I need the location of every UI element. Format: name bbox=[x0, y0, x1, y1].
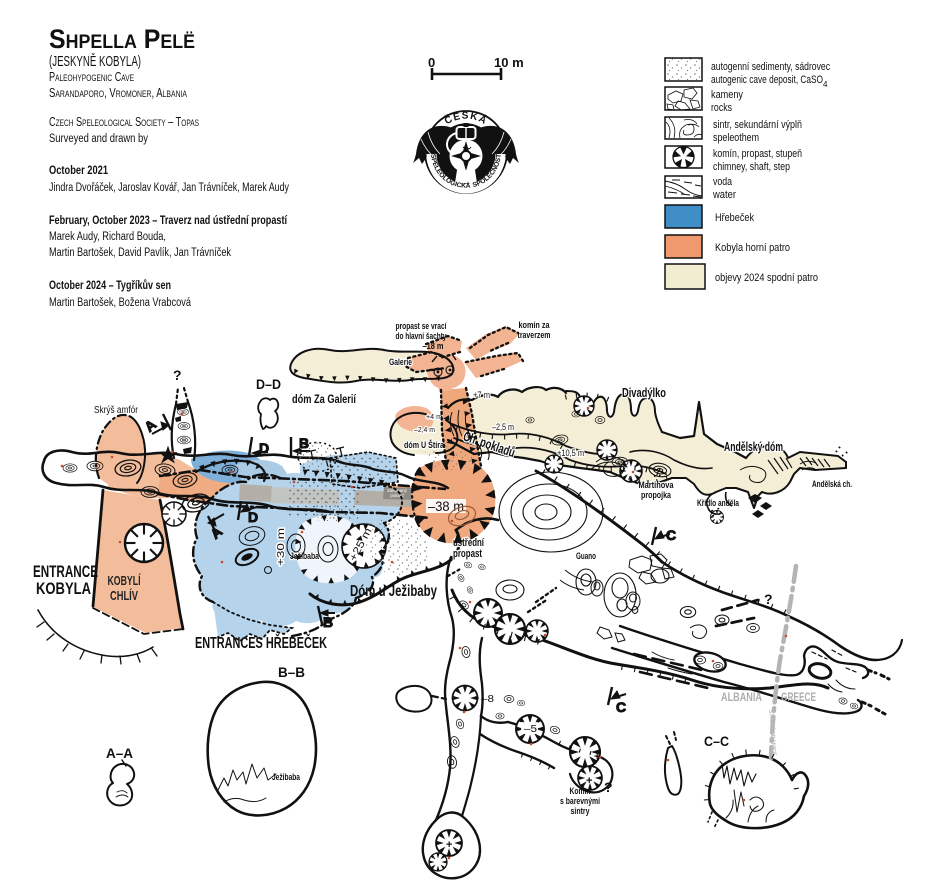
svg-text:+: + bbox=[446, 839, 452, 851]
svg-text:Czech Speleological Society –: Czech Speleological Society – Topas bbox=[49, 115, 199, 129]
svg-text:?: ? bbox=[173, 367, 182, 383]
svg-text:autogenic cave deposit, CaSO: autogenic cave deposit, CaSO bbox=[711, 74, 823, 86]
svg-text:Martin Bartošek, David Pavlík,: Martin Bartošek, David Pavlík, Jan Trávn… bbox=[49, 247, 231, 259]
svg-text:Paleohypogenic Cave: Paleohypogenic Cave bbox=[49, 70, 134, 84]
svg-text:Křídlo anděla: Křídlo anděla bbox=[697, 498, 739, 508]
svg-text:Dóm u Ježibaby: Dóm u Ježibaby bbox=[350, 583, 437, 600]
svg-text:February, October 2023 – Trave: February, October 2023 – Traverz nad úst… bbox=[49, 213, 287, 227]
svg-text:KOBYLA: KOBYLA bbox=[36, 579, 91, 598]
svg-text:propast se vrací: propast se vrací bbox=[396, 321, 447, 331]
svg-text:(JESKYNĚ KOBYLA): (JESKYNĚ KOBYLA) bbox=[49, 53, 141, 70]
svg-text:Skrýš amfór: Skrýš amfór bbox=[94, 405, 139, 416]
svg-text:Andělská ch.: Andělská ch. bbox=[812, 479, 852, 489]
svg-text:Divadýlko: Divadýlko bbox=[622, 386, 666, 400]
svg-text:ENTRANCES HŘEBEČEK: ENTRANCES HŘEBEČEK bbox=[195, 634, 328, 652]
svg-text:KOBYLÍ: KOBYLÍ bbox=[108, 573, 141, 588]
svg-text:ALBANIA: ALBANIA bbox=[721, 692, 762, 704]
svg-text:–2,5 m: –2,5 m bbox=[492, 422, 514, 432]
svg-text:C–C: C–C bbox=[704, 733, 729, 749]
svg-text:+: + bbox=[594, 751, 600, 763]
svg-text:–5: –5 bbox=[524, 724, 538, 735]
svg-text:October 2021: October 2021 bbox=[49, 163, 108, 177]
svg-text:+30 m: +30 m bbox=[275, 528, 287, 566]
svg-text:dóm U Štíra: dóm U Štíra bbox=[404, 439, 445, 450]
svg-text:?: ? bbox=[764, 591, 773, 607]
svg-text:+4 m: +4 m bbox=[426, 412, 442, 421]
svg-text:Martinova: Martinova bbox=[639, 480, 674, 490]
svg-text:s barevnými: s barevnými bbox=[560, 796, 600, 806]
svg-text:Ježibaba: Ježibaba bbox=[290, 551, 319, 561]
svg-text:Kobyla horní patro: Kobyla horní patro bbox=[715, 242, 790, 254]
svg-text:Guano: Guano bbox=[576, 551, 596, 561]
svg-text:propojka: propojka bbox=[641, 490, 671, 500]
svg-text:STÁTNÍ HRANICE: STÁTNÍ HRANICE bbox=[767, 710, 779, 757]
svg-text:0: 0 bbox=[428, 55, 435, 70]
svg-text:?: ? bbox=[604, 779, 613, 795]
svg-text:C: C bbox=[666, 527, 676, 543]
svg-text:Surveyed and drawn by: Surveyed and drawn by bbox=[49, 133, 148, 145]
svg-text:Shpella Pelë: Shpella Pelë bbox=[49, 24, 195, 54]
svg-text:B: B bbox=[323, 614, 333, 630]
svg-text:D: D bbox=[248, 509, 258, 525]
svg-text:+7 m: +7 m bbox=[473, 390, 490, 400]
svg-text:+: + bbox=[586, 775, 592, 787]
svg-text:propast: propast bbox=[453, 548, 482, 560]
svg-text:traverzem: traverzem bbox=[518, 330, 551, 340]
svg-text:–8: –8 bbox=[481, 694, 495, 705]
svg-text:GREECE: GREECE bbox=[781, 692, 816, 704]
svg-text:water: water bbox=[712, 189, 736, 201]
svg-text:rocks: rocks bbox=[711, 102, 732, 114]
svg-text:komín, propast, stupeň: komín, propast, stupeň bbox=[713, 148, 802, 160]
svg-text:D–D: D–D bbox=[256, 376, 281, 392]
svg-text:sintry: sintry bbox=[571, 806, 590, 816]
svg-text:October 2024 – Tygříkův sen: October 2024 – Tygříkův sen bbox=[49, 278, 171, 292]
svg-text:objevy 2024 spodní patro: objevy 2024 spodní patro bbox=[715, 272, 818, 284]
svg-text:C: C bbox=[616, 699, 626, 715]
svg-text:dóm Za Galerií: dóm Za Galerií bbox=[292, 394, 357, 406]
svg-text:chimney, shaft, step: chimney, shaft, step bbox=[713, 161, 790, 173]
svg-text:autogenní sedimenty, sádrovec: autogenní sedimenty, sádrovec bbox=[711, 61, 830, 73]
svg-text:sintr, sekundární výplň: sintr, sekundární výplň bbox=[713, 119, 802, 131]
svg-text:Sarandaporo, Vromoner, Albania: Sarandaporo, Vromoner, Albania bbox=[49, 86, 187, 100]
svg-text:Marek Audy, Richard Bouda,: Marek Audy, Richard Bouda, bbox=[49, 231, 166, 243]
svg-text:Ježibaba: Ježibaba bbox=[272, 772, 300, 782]
svg-text:Martin Bartošek, Božena Vrabco: Martin Bartošek, Božena Vrabcová bbox=[49, 297, 191, 309]
svg-text:Hřebeček: Hřebeček bbox=[715, 212, 754, 224]
svg-text:Jindra Dvořáček, Jaroslav Ková: Jindra Dvořáček, Jaroslav Kovář, Jan Trá… bbox=[49, 182, 289, 194]
svg-text:A–A: A–A bbox=[106, 745, 133, 761]
svg-text:10 m: 10 m bbox=[494, 55, 524, 70]
svg-text:4: 4 bbox=[823, 80, 828, 89]
svg-text:+10,5 m: +10,5 m bbox=[557, 448, 584, 458]
svg-text:–2,4 m: –2,4 m bbox=[414, 425, 435, 434]
svg-text:B–B: B–B bbox=[278, 664, 305, 680]
svg-text:komín za: komín za bbox=[519, 320, 550, 330]
svg-text:D: D bbox=[259, 440, 269, 456]
svg-text:Andělský dóm: Andělský dóm bbox=[724, 440, 783, 454]
svg-text:kameny: kameny bbox=[711, 89, 743, 101]
svg-text:voda: voda bbox=[713, 176, 733, 188]
svg-text:CHLÍV: CHLÍV bbox=[110, 588, 138, 603]
svg-text:speleothem: speleothem bbox=[713, 132, 759, 144]
